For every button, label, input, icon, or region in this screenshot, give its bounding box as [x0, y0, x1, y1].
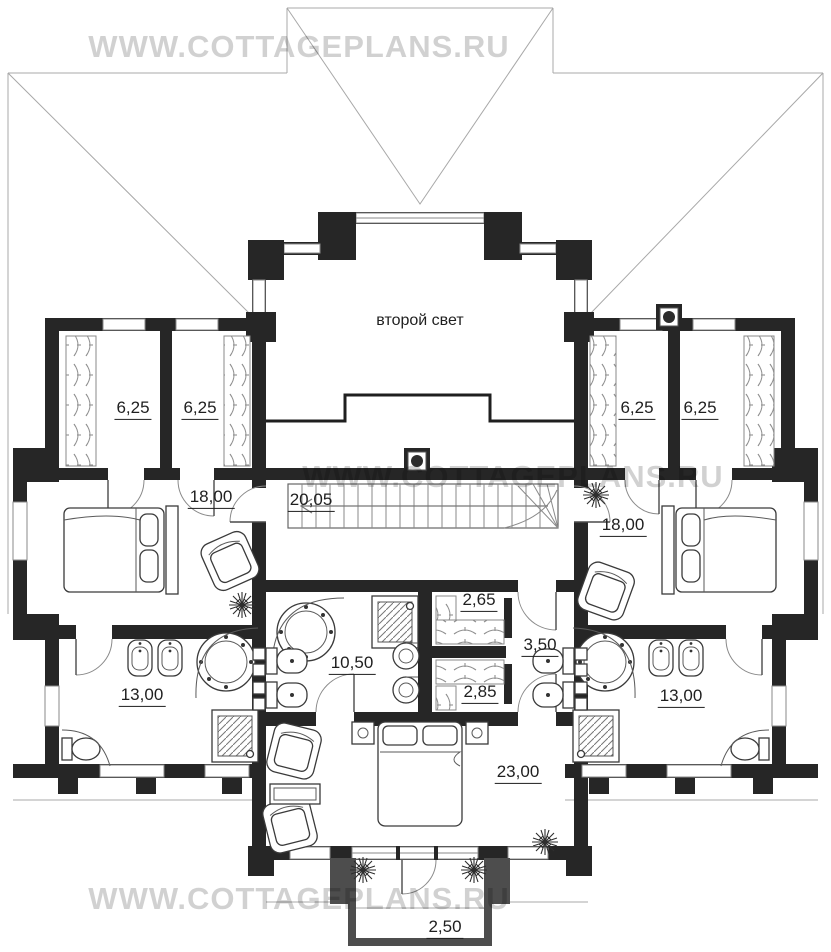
coffee-table	[270, 784, 320, 804]
second-light-label: второй свет	[376, 312, 463, 330]
wardrobe-panel-right	[662, 506, 674, 594]
room-label-master-bedroom: 23,00	[495, 762, 542, 784]
wardrobe-panel-left	[166, 506, 178, 594]
room-label-bathroom-center: 10,50	[329, 653, 376, 675]
plant	[461, 857, 487, 883]
room-label-corridor: 3,50	[521, 635, 558, 657]
watermark-middle: WWW.COTTAGEPLANS.RU	[302, 459, 723, 495]
room-label-closet-right-inner: 6,25	[618, 398, 655, 420]
room-label-closet-left-inner: 6,25	[181, 398, 218, 420]
floor-plan: WWW.COTTAGEPLANS.RU WWW.COTTAGEPLANS.RU …	[0, 0, 831, 952]
plant	[229, 592, 255, 618]
room-label-bathroom-right: 13,00	[658, 686, 705, 708]
bed-left	[64, 506, 178, 594]
bed-master	[352, 722, 488, 826]
nightstand	[466, 722, 488, 744]
watermark-bottom: WWW.COTTAGEPLANS.RU	[88, 881, 509, 917]
room-label-closet-center-top: 2,65	[460, 590, 497, 612]
second-light-opening-edge	[266, 395, 574, 421]
room-label-closet-left-outer: 6,25	[114, 398, 151, 420]
room-label-bedroom-right: 18,00	[600, 515, 647, 537]
armchair	[265, 721, 324, 781]
watermark-top: WWW.COTTAGEPLANS.RU	[88, 29, 509, 65]
room-label-bedroom-left: 18,00	[188, 487, 235, 509]
room-label-closet-right-outer: 6,25	[681, 398, 718, 420]
room-label-bathroom-left: 13,00	[119, 685, 166, 707]
bed-right	[662, 506, 776, 594]
nightstand	[352, 722, 374, 744]
room-label-closet-center-bottom: 2,85	[461, 682, 498, 704]
room-label-balcony: 2,50	[426, 917, 463, 939]
